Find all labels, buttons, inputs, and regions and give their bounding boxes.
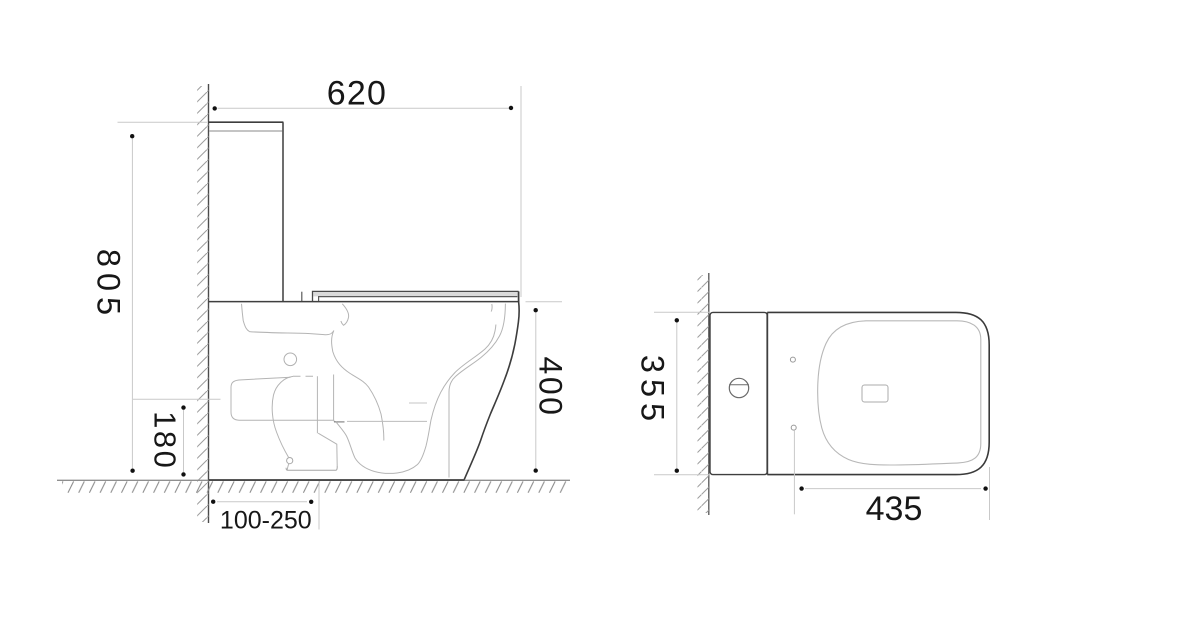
svg-text:620: 620 [327,75,387,113]
svg-text:435: 435 [866,490,923,528]
svg-text:400: 400 [533,357,569,418]
svg-text:805: 805 [90,249,126,321]
svg-text:355: 355 [634,355,670,427]
svg-text:100-250: 100-250 [220,507,312,535]
svg-text:180: 180 [148,411,183,470]
